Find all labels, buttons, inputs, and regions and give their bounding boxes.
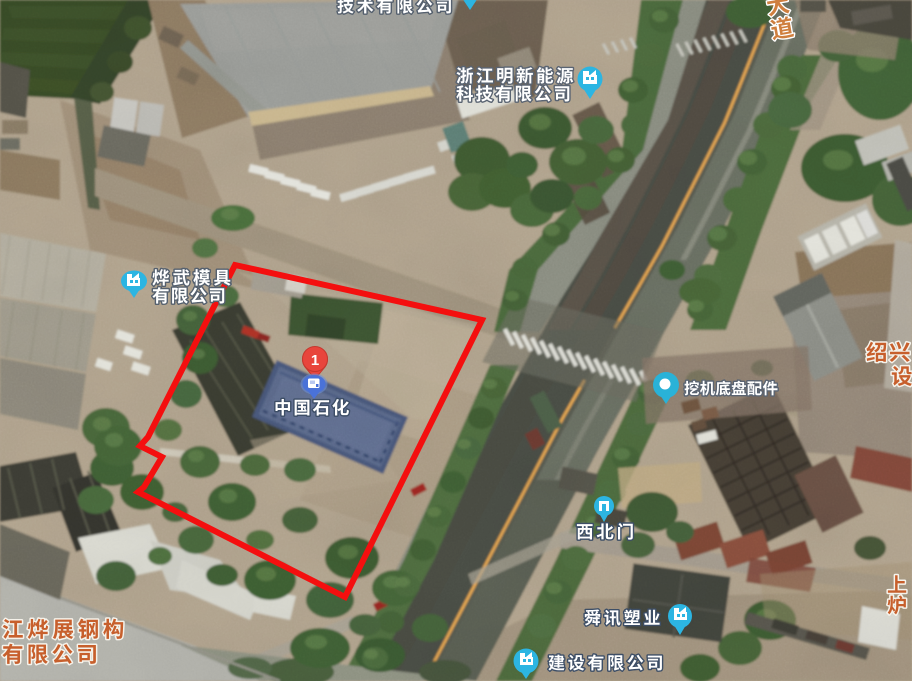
svg-text:1: 1 [311,352,319,369]
